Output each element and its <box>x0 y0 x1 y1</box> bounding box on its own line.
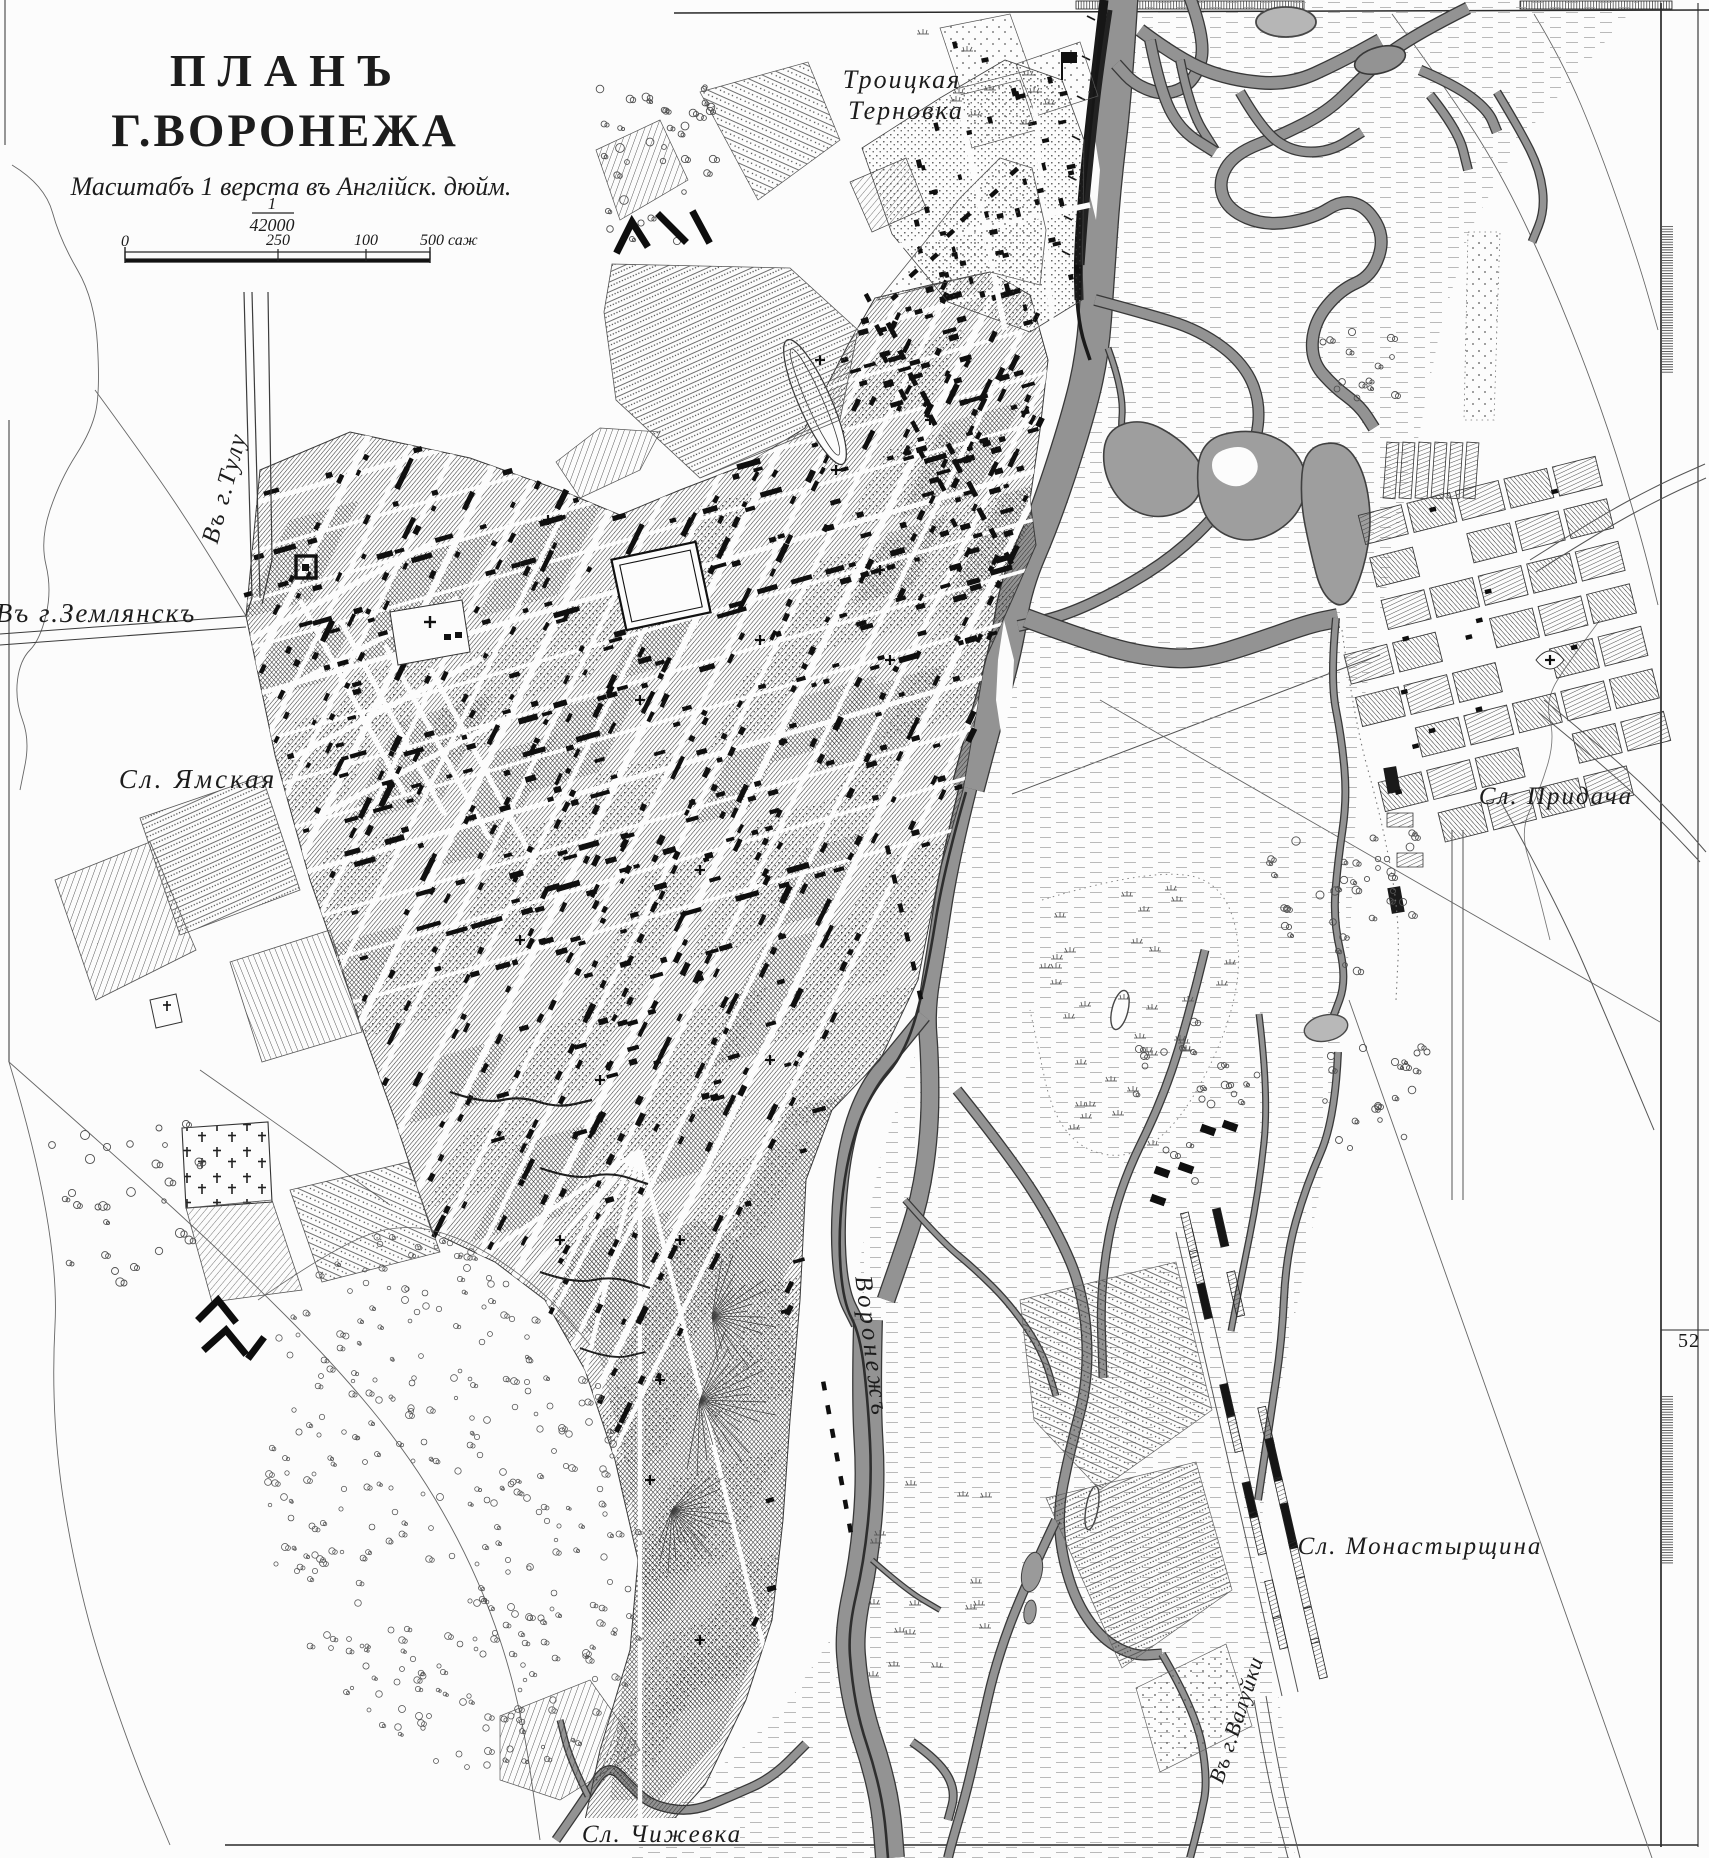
svg-text:Сл. Придача: Сл. Придача <box>1479 783 1633 810</box>
svg-text:100: 100 <box>354 232 378 249</box>
svg-text:Сл. Ямская: Сл. Ямская <box>119 764 277 794</box>
svg-text:Сл. Монастырщина: Сл. Монастырщина <box>1298 1533 1543 1560</box>
svg-text:1: 1 <box>268 194 277 213</box>
svg-text:ПЛАНЪ: ПЛАНЪ <box>170 45 404 96</box>
svg-text:500 саж: 500 саж <box>420 232 478 249</box>
svg-text:52: 52 <box>1678 1330 1700 1352</box>
svg-text:Сл. Чижевка: Сл. Чижевка <box>582 1821 742 1848</box>
svg-text:Въ г.Землянскъ: Въ г.Землянскъ <box>0 598 196 628</box>
svg-text:Г.ВОРОНЕЖА: Г.ВОРОНЕЖА <box>111 105 459 157</box>
svg-text:Масштабъ 1 верста въ Англійск.: Масштабъ 1 верста въ Англійск. дюйм. <box>70 172 512 201</box>
svg-text:Терновка: Терновка <box>848 96 964 125</box>
svg-text:250: 250 <box>266 232 290 249</box>
svg-text:Троицкая: Троицкая <box>843 65 961 94</box>
